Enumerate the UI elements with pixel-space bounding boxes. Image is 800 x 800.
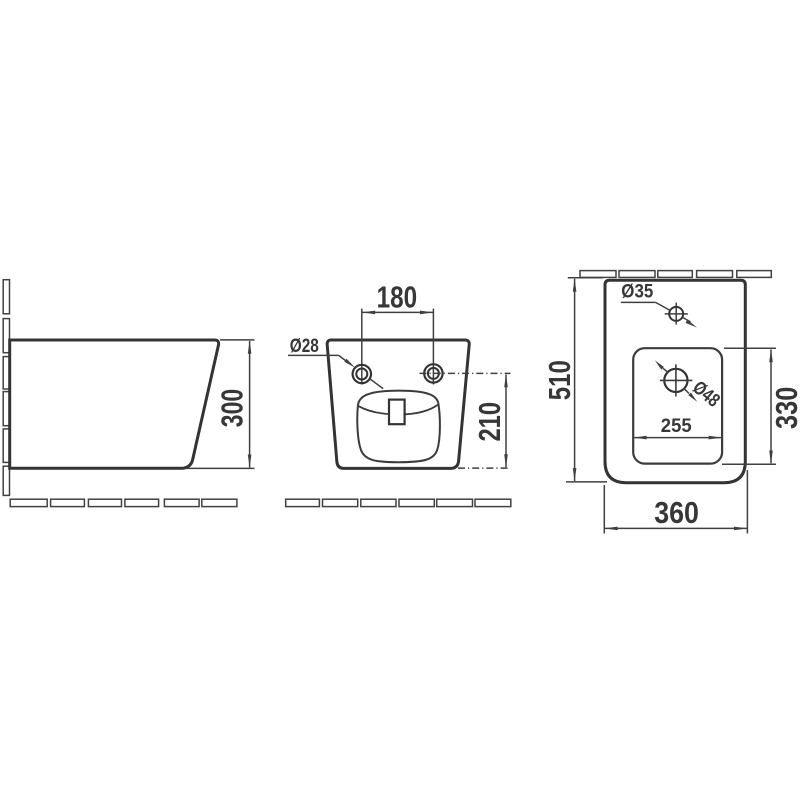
svg-text:Ø28: Ø28	[290, 336, 319, 357]
svg-text:360: 360	[654, 495, 699, 530]
svg-text:255: 255	[661, 416, 692, 437]
svg-text:300: 300	[214, 389, 249, 427]
svg-text:180: 180	[377, 280, 418, 315]
svg-text:510: 510	[542, 360, 577, 400]
svg-text:Ø35: Ø35	[621, 282, 653, 303]
svg-text:330: 330	[769, 387, 800, 429]
svg-text:210: 210	[472, 402, 507, 442]
